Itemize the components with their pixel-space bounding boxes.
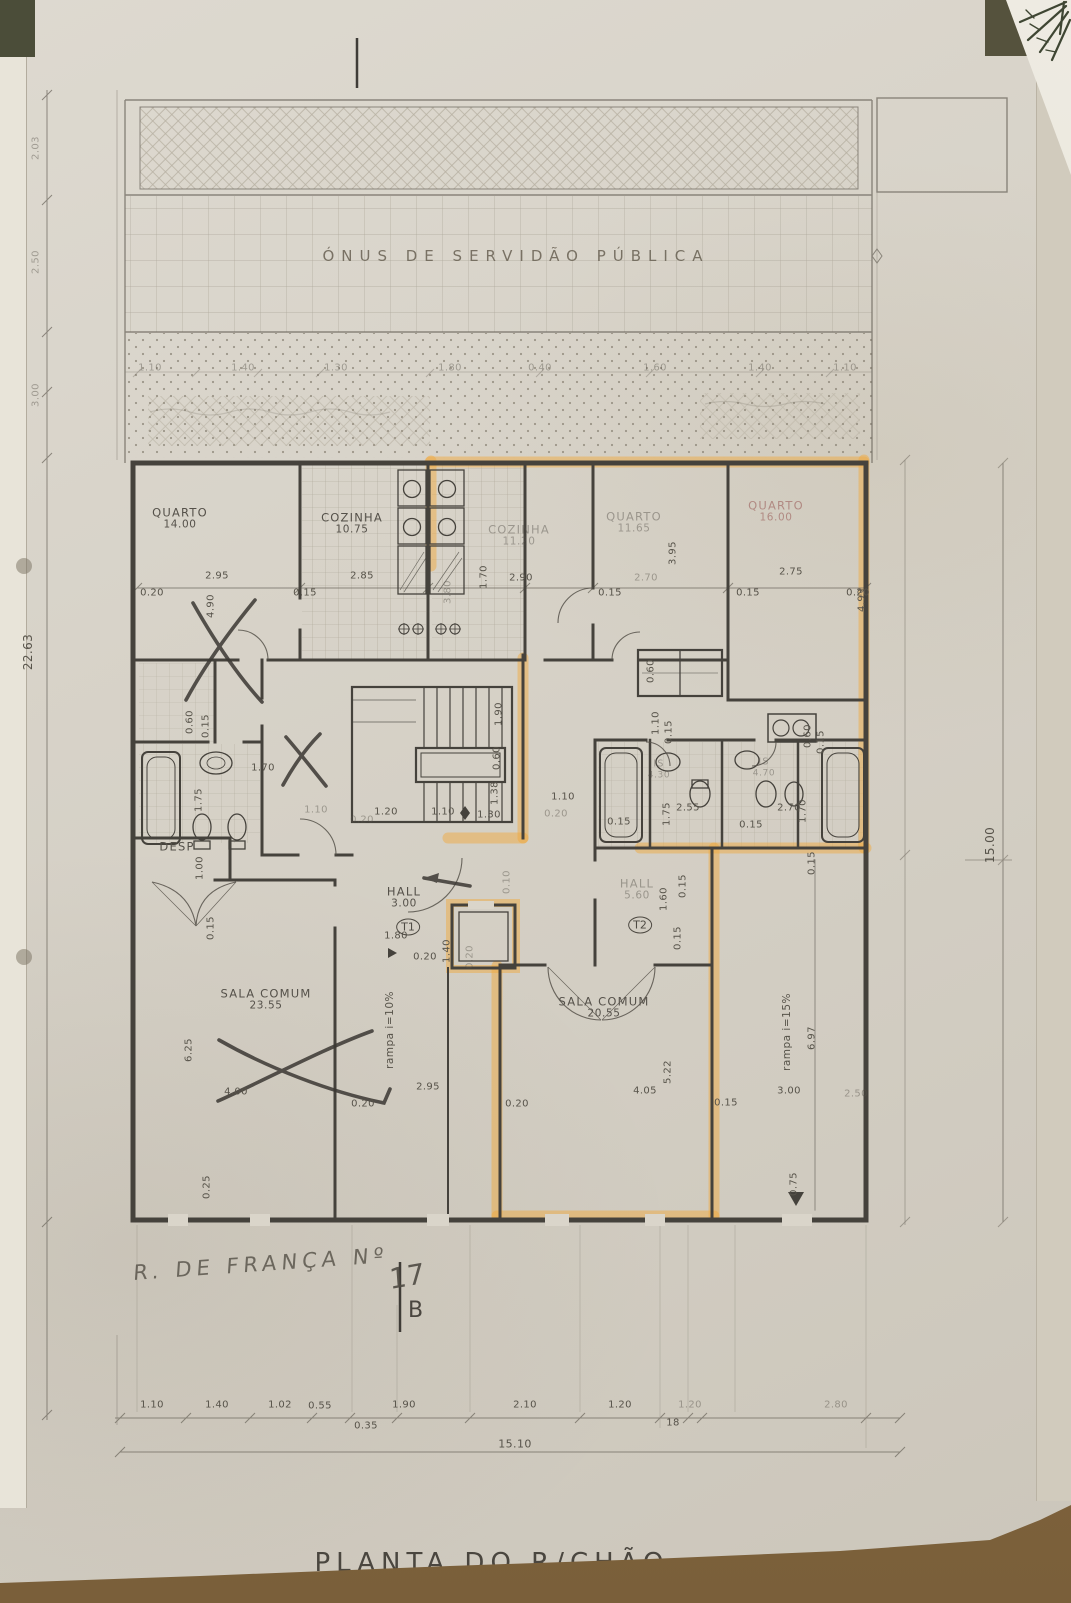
dimension-label: 1.10 (651, 711, 662, 735)
dimension-label: 22.63 (21, 634, 35, 670)
room-label: HALL5.60 (620, 878, 654, 903)
dimension-label: 1.90 (494, 702, 505, 726)
dimension-label: 1.60 (643, 363, 667, 374)
dimension-label: 0.15 (736, 588, 760, 599)
dimension-label: 1.30 (324, 363, 348, 374)
dimension-label: 1.10 (551, 792, 575, 803)
dimension-label: 15.00 (983, 827, 997, 863)
dimension-label: 1.10 (304, 805, 328, 816)
street-number: 17 (388, 1257, 425, 1296)
dimension-label: 1.60 (659, 887, 670, 911)
dimension-label: 2.90 (509, 573, 533, 584)
dimension-label: 0.20 (140, 588, 164, 599)
easement-label: ÓNUS DE SERVIDÃO PÚBLICA (322, 247, 709, 265)
room-label: HALL3.00 (387, 886, 421, 911)
dimension-label: 1.02 (268, 1400, 292, 1411)
dimension-label: 1.75 (194, 788, 205, 812)
dimension-label: 1.00 (195, 856, 206, 880)
dimension-label: 3.00 (777, 1086, 801, 1097)
dimension-label: 1.75 (662, 802, 673, 826)
dimension-label: 2.80 (824, 1400, 848, 1411)
dimension-label: 1.20 (678, 1400, 702, 1411)
room-label: COZINHA10.75 (321, 512, 383, 537)
dimension-label: 3.80 (443, 580, 454, 604)
dimension-label: 0.60 (646, 659, 657, 683)
room-label: DESP (159, 841, 194, 854)
dimension-label: 15.10 (498, 1438, 532, 1451)
dimension-label: 0.15 (816, 730, 827, 754)
dimension-label: 1.10 (140, 1400, 164, 1411)
ramp-label: rampa i=10% (384, 991, 396, 1069)
room-label: IS4.30 (648, 760, 670, 781)
dimension-label: 1.40 (205, 1400, 229, 1411)
dimension-label: 1.38 (490, 781, 501, 805)
dimension-label: 1.20 (374, 807, 398, 818)
dimension-label: 2.50 (844, 1089, 868, 1100)
dimension-label: 2.75 (779, 567, 803, 578)
dimension-label: 4.00 (224, 1087, 248, 1098)
labels-layer: ÓNUS DE SERVIDÃO PÚBLICA R. DE FRANÇA Nº… (0, 0, 1071, 1603)
dimension-label: 0.75 (789, 1172, 800, 1196)
dimension-label: 18 (666, 1418, 680, 1429)
dimension-label: 0.15 (739, 820, 763, 831)
dimension-label: 1.10 (833, 363, 857, 374)
dimension-label: 0.40 (528, 363, 552, 374)
dimension-label: 0.15 (607, 817, 631, 828)
dimension-label: 2.55 (676, 803, 700, 814)
dimension-label: 2.85 (350, 571, 374, 582)
street-note: R. DE FRANÇA Nº (132, 1243, 389, 1285)
dimension-label: 1.40 (748, 363, 772, 374)
room-label: SALA COMUM20.55 (559, 996, 650, 1021)
section-marker-label: B (408, 1298, 423, 1323)
room-label: IS4.70 (753, 758, 775, 779)
unit-marker: T1 (396, 919, 420, 936)
dimension-label: 3.95 (668, 541, 679, 565)
dimension-label: 0.60 (803, 724, 814, 748)
room-label: QUARTO16.00 (748, 500, 804, 525)
room-label: COZINHA11.20 (488, 524, 550, 549)
dimension-label: 4.90 (206, 594, 217, 618)
dimension-label: 6.25 (184, 1038, 195, 1062)
dimension-label: 1.70 (798, 799, 809, 823)
dimension-label: 0.15 (714, 1098, 738, 1109)
dimension-label: 0.20 (350, 815, 374, 826)
dimension-label: 1.20 (608, 1400, 632, 1411)
dimension-label: 1.40 (231, 363, 255, 374)
dimension-label: 1.70 (251, 763, 275, 774)
dimension-label: 0.15 (206, 916, 217, 940)
dimension-label: 0.55 (308, 1401, 332, 1412)
dimension-label: 0.20 (465, 945, 476, 969)
dimension-label: 0.15 (664, 720, 675, 744)
dimension-label: 3.00 (31, 383, 42, 407)
dimension-label: 0.15 (807, 851, 818, 875)
dimension-label: 2.95 (205, 571, 229, 582)
dimension-label: 0.35 (354, 1421, 378, 1432)
room-label: QUARTO11.65 (606, 511, 662, 536)
dimension-label: 0.15 (678, 874, 689, 898)
dimension-label: 0.25 (202, 1175, 213, 1199)
dimension-label: 1.10 (431, 807, 455, 818)
dimension-label: 0.60 (492, 746, 503, 770)
dimension-label: 1.90 (392, 1400, 416, 1411)
dimension-label: 2.70 (634, 573, 658, 584)
dimension-label: 2.50 (31, 250, 42, 274)
dimension-label: 0.20 (351, 1099, 375, 1110)
dimension-label: 2.10 (513, 1400, 537, 1411)
dimension-label: 0.20 (505, 1099, 529, 1110)
dimension-label: 0.60 (185, 710, 196, 734)
dimension-label: 2.03 (31, 136, 42, 160)
dimension-label: 6.97 (807, 1026, 818, 1050)
room-label: SALA COMUM23.55 (221, 988, 312, 1013)
plant-sketch-icon (1000, 0, 1071, 175)
dimension-label: 4.05 (633, 1086, 657, 1097)
dimension-label: 0.10 (502, 870, 513, 894)
room-label: QUARTO14.00 (152, 507, 208, 532)
ramp-label: rampa i=15% (781, 993, 793, 1071)
dimension-label: 1.30 (477, 810, 501, 821)
dimension-label: 1.40 (442, 939, 453, 963)
unit-marker: T2 (628, 917, 652, 934)
dimension-label: 4.93 (857, 588, 868, 612)
dimension-label: 5.22 (663, 1060, 674, 1084)
dimension-label: 1.80 (438, 363, 462, 374)
dimension-label: 0.20 (413, 952, 437, 963)
dimension-label: 2.95 (416, 1082, 440, 1093)
dimension-label: 0.15 (598, 588, 622, 599)
dimension-label: 0.15 (201, 714, 212, 738)
dimension-label: 1.70 (479, 565, 490, 589)
dimension-label: 0.15 (673, 926, 684, 950)
dimension-label: 0.20 (544, 809, 568, 820)
dimension-label: 0.15 (293, 588, 317, 599)
dimension-label: 1.10 (138, 363, 162, 374)
